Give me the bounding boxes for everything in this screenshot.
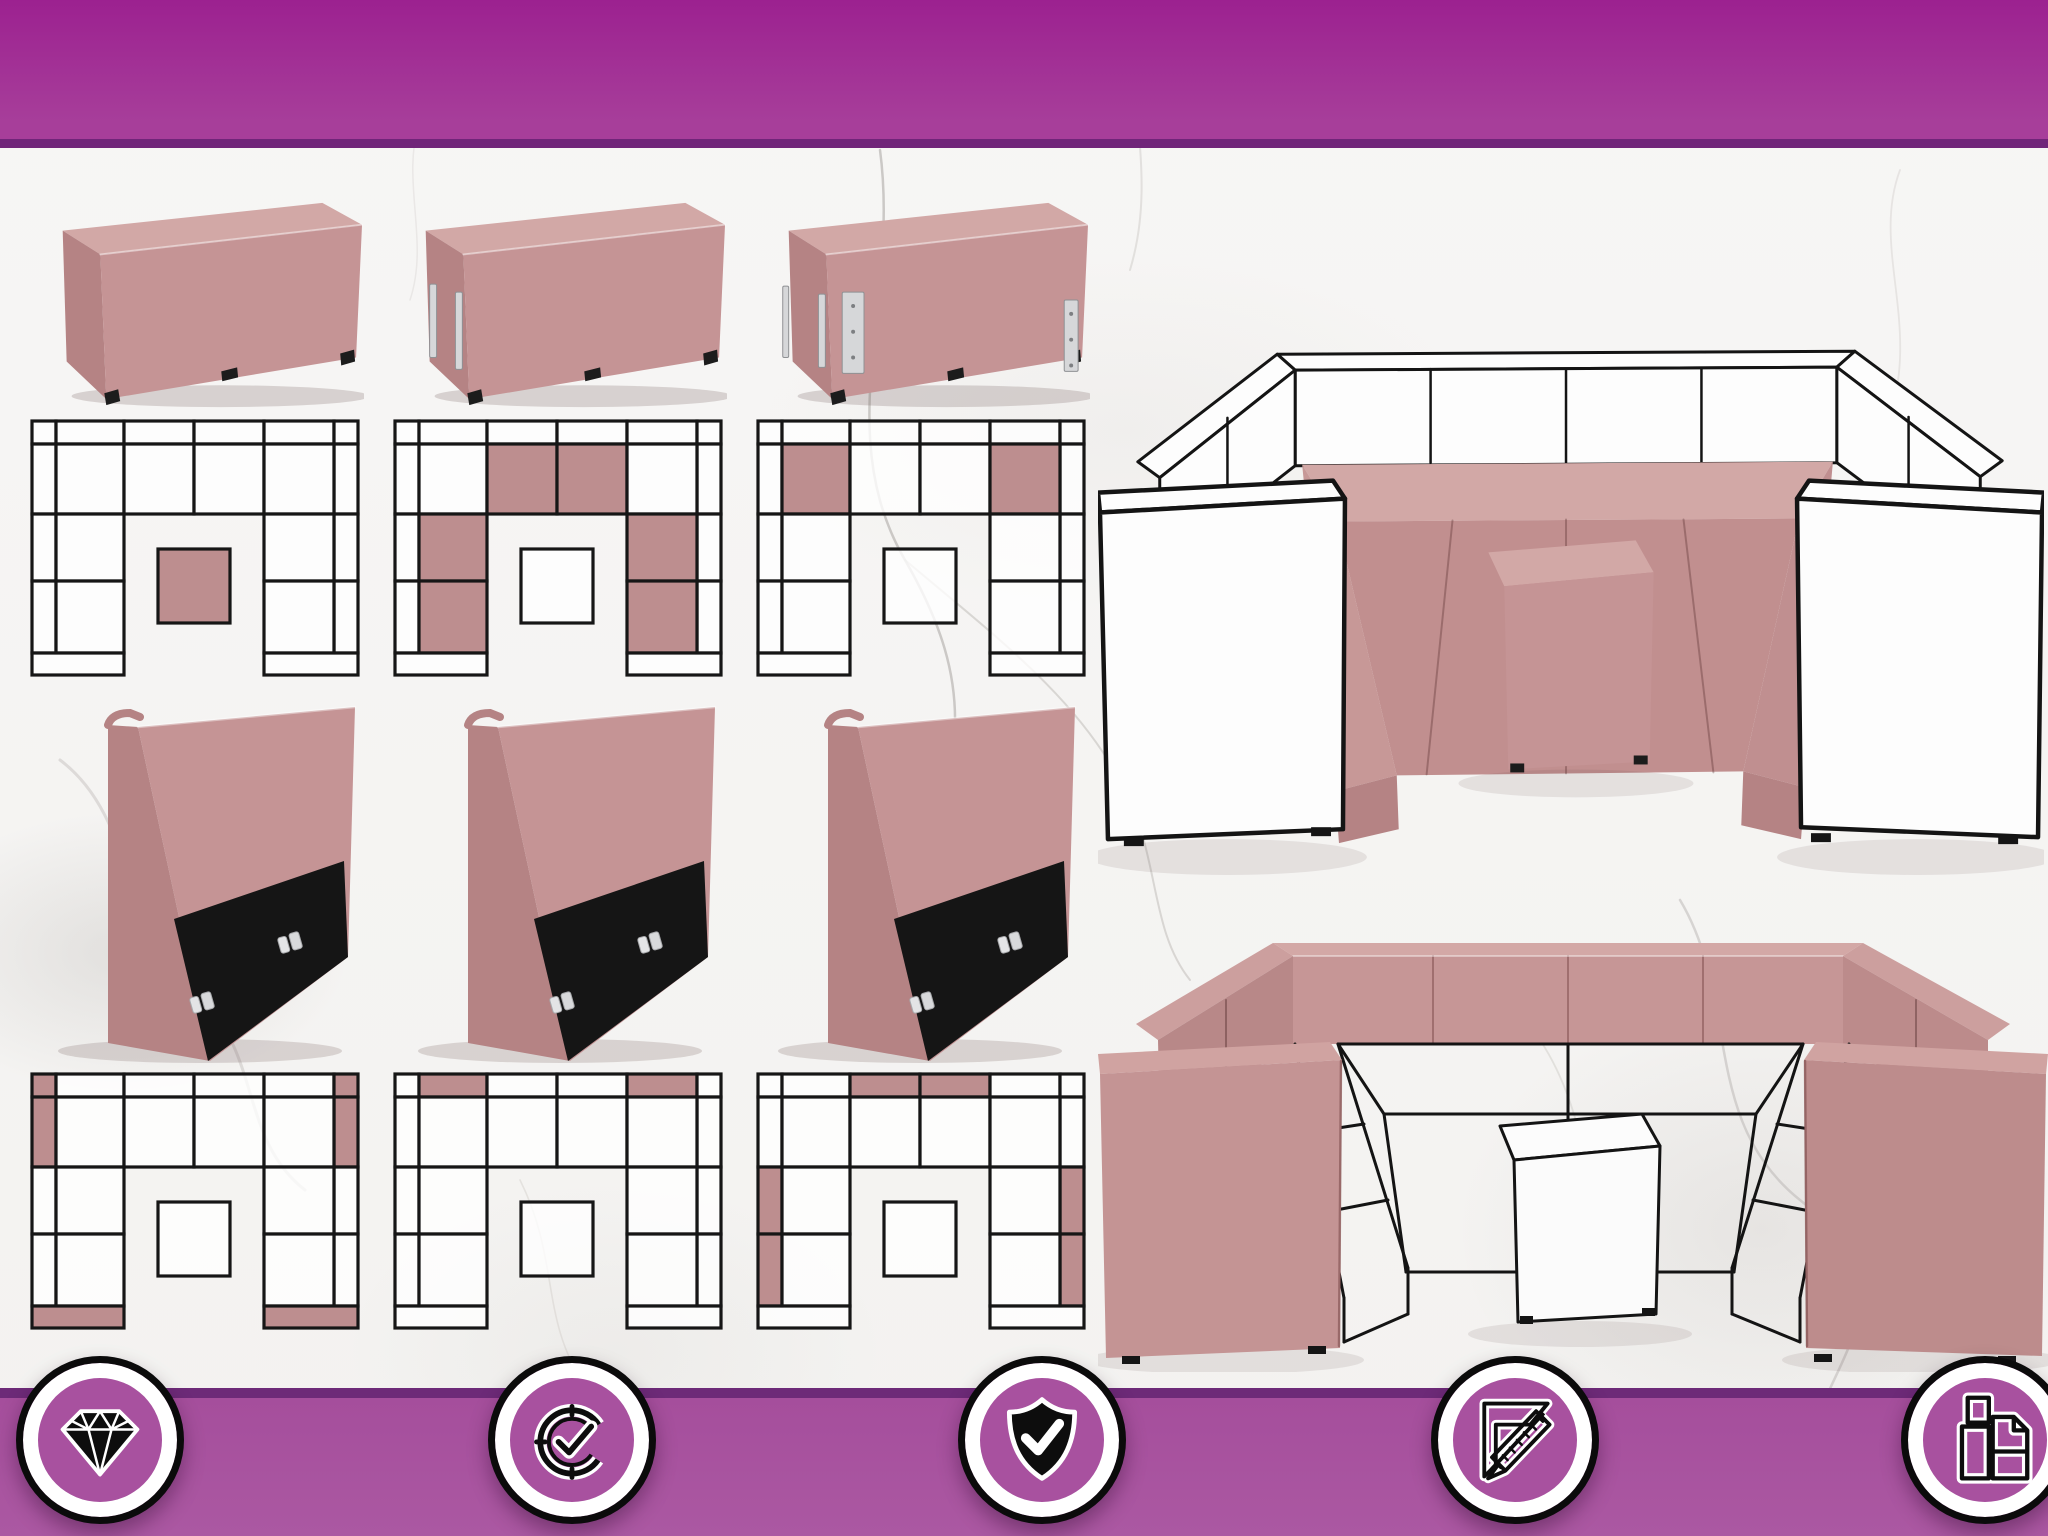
furniture-modules-icon [1937,1392,2033,1488]
module-photo-seat-middle [390,196,727,411]
placement-diagram-seat-middle [393,419,723,677]
placement-diagram-backrest-top [393,1072,723,1330]
sofa-render-outline-frame [1098,338,2044,938]
modular-sofa-infographic [0,0,2048,1536]
sofa-render-pink-frame [1098,942,2048,1372]
ruler-pencil-icon [1467,1392,1563,1488]
module-photo-pouf-table [27,196,364,411]
top-banner-bar [0,0,2048,148]
placement-diagram-pouf-table [30,419,360,677]
placement-diagram-end-panel [30,1072,360,1330]
badge-long-lasting [488,1356,656,1524]
badge-premium-quality [16,1356,184,1524]
placement-diagram-backrest-side [756,1072,1086,1330]
badge-guarantee [958,1356,1126,1524]
module-photo-seat-corner [753,196,1090,411]
module-photo-end-panel [50,695,360,1065]
module-photo-backrest-side [770,695,1080,1065]
module-photo-backrest-top [410,695,720,1065]
clock-check-icon [524,1392,620,1488]
shield-check-icon [994,1392,1090,1488]
diamond-icon [52,1392,148,1488]
badge-made-to-measure [1431,1356,1599,1524]
placement-diagram-seat-corner [756,419,1086,677]
